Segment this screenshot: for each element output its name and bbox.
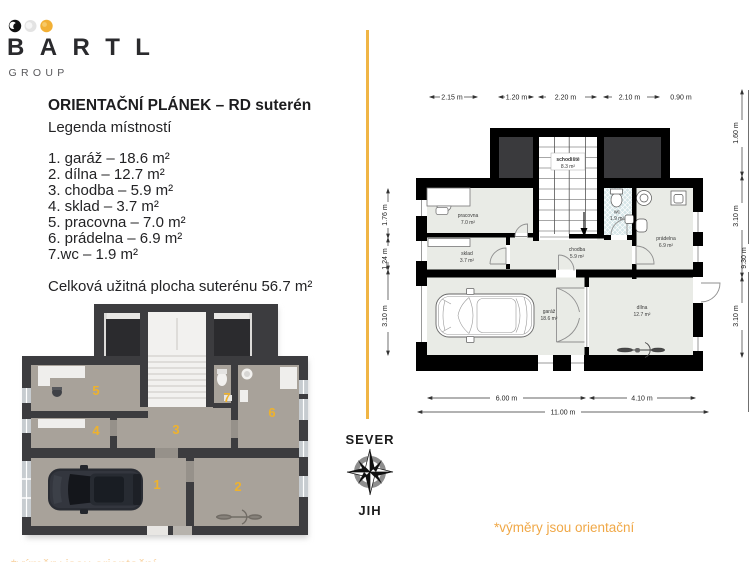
- svg-text:3.10 m: 3.10 m: [733, 205, 740, 227]
- svg-text:wc: wc: [614, 210, 621, 216]
- svg-text:6.9 m²: 6.9 m²: [659, 243, 674, 249]
- svg-text:2.20 m: 2.20 m: [555, 95, 577, 102]
- svg-text:1.9 m²: 1.9 m²: [610, 216, 625, 222]
- svg-text:6.00 m: 6.00 m: [496, 396, 518, 403]
- svg-text:3: 3: [172, 422, 179, 437]
- svg-text:5: 5: [92, 383, 99, 398]
- svg-text:0.90 m: 0.90 m: [670, 95, 692, 102]
- svg-text:sklad: sklad: [461, 251, 473, 257]
- svg-text:1.24 m: 1.24 m: [382, 248, 389, 270]
- svg-text:SEVER: SEVER: [345, 432, 394, 447]
- svg-text:3.7 m²: 3.7 m²: [460, 258, 475, 264]
- svg-text:1.60 m: 1.60 m: [733, 122, 740, 144]
- svg-text:9.30 m: 9.30 m: [741, 247, 748, 269]
- svg-text:chodba: chodba: [569, 247, 586, 253]
- svg-text:2: 2: [234, 479, 241, 494]
- svg-text:1.20 m: 1.20 m: [506, 95, 528, 102]
- svg-text:12.7 m²: 12.7 m²: [634, 312, 651, 318]
- svg-text:garáž: garáž: [543, 309, 556, 315]
- svg-text:11.00 m: 11.00 m: [551, 410, 576, 417]
- svg-text:2.10 m: 2.10 m: [619, 95, 641, 102]
- svg-text:pracovna: pracovna: [458, 213, 479, 219]
- svg-text:7.0 m²: 7.0 m²: [461, 220, 476, 226]
- svg-text:1.76 m: 1.76 m: [382, 204, 389, 226]
- svg-text:JIH: JIH: [358, 503, 381, 518]
- svg-text:4.10 m: 4.10 m: [631, 396, 653, 403]
- svg-text:prádelna: prádelna: [656, 236, 676, 242]
- svg-text:7: 7: [223, 390, 230, 405]
- svg-text:schodiště: schodiště: [556, 157, 580, 163]
- svg-text:dílna: dílna: [637, 305, 648, 311]
- svg-text:4: 4: [92, 423, 100, 438]
- svg-text:8.3 m²: 8.3 m²: [561, 164, 576, 170]
- svg-text:3.10 m: 3.10 m: [733, 305, 740, 327]
- svg-text:6: 6: [268, 405, 275, 420]
- svg-text:1: 1: [153, 477, 160, 492]
- svg-text:2.15 m: 2.15 m: [441, 95, 463, 102]
- svg-text:5.9 m²: 5.9 m²: [570, 254, 585, 260]
- svg-text:18.6 m²: 18.6 m²: [541, 316, 558, 322]
- svg-text:3.10 m: 3.10 m: [382, 305, 389, 327]
